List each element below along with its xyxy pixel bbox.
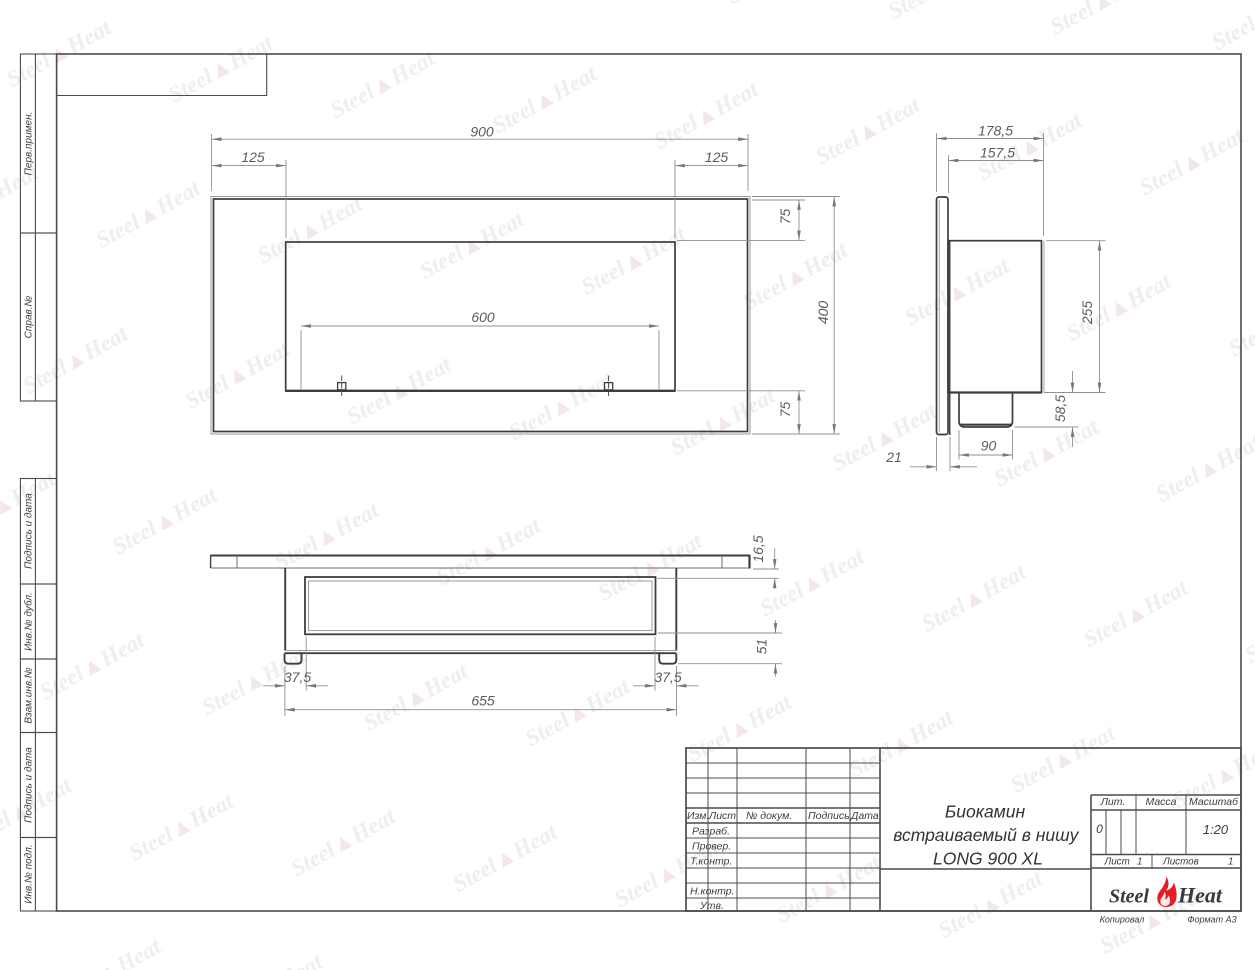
svg-text:Н.контр.: Н.контр. bbox=[690, 886, 734, 898]
svg-text:125: 125 bbox=[241, 149, 265, 165]
svg-text:Перв.примен.: Перв.примен. bbox=[24, 112, 35, 176]
svg-text:157,5: 157,5 bbox=[980, 145, 1015, 161]
svg-text:Т.контр.: Т.контр. bbox=[690, 856, 732, 868]
svg-text:Листов: Листов bbox=[1162, 857, 1199, 868]
svg-text:Лист: Лист bbox=[1104, 857, 1130, 868]
svg-text:Лит.: Лит. bbox=[1100, 796, 1126, 808]
svg-text:37,5: 37,5 bbox=[284, 669, 311, 685]
svg-text:Инв.№ дубл.: Инв.№ дубл. bbox=[23, 592, 35, 651]
svg-text:Масса: Масса bbox=[1145, 796, 1176, 808]
svg-text:Разраб.: Разраб. bbox=[692, 826, 730, 838]
svg-text:90: 90 bbox=[981, 438, 997, 454]
svg-text:Подпись и дата: Подпись и дата bbox=[24, 493, 35, 569]
svg-text:21: 21 bbox=[885, 449, 902, 465]
svg-text:Копировал: Копировал bbox=[1100, 915, 1145, 925]
svg-text:178,5: 178,5 bbox=[978, 123, 1013, 139]
svg-text:Формат А3: Формат А3 bbox=[1187, 915, 1236, 925]
svg-text:Справ.№: Справ.№ bbox=[24, 295, 35, 338]
svg-text:16,5: 16,5 bbox=[750, 535, 766, 562]
svg-text:Steel: Steel bbox=[1109, 886, 1149, 908]
svg-text:Подпись и дата: Подпись и дата bbox=[24, 747, 35, 823]
svg-text:0: 0 bbox=[1096, 822, 1103, 836]
svg-text:1:20: 1:20 bbox=[1203, 822, 1229, 837]
svg-text:Дата: Дата bbox=[850, 810, 879, 822]
svg-text:Heat: Heat bbox=[1177, 883, 1223, 908]
svg-text:Утв.: Утв. bbox=[699, 900, 724, 912]
svg-text:Лист: Лист bbox=[708, 810, 736, 822]
svg-text:75: 75 bbox=[777, 209, 793, 225]
svg-text:Биокамин: Биокамин bbox=[945, 802, 1026, 822]
svg-text:37,5: 37,5 bbox=[654, 669, 681, 685]
svg-text:1: 1 bbox=[1228, 857, 1233, 868]
svg-text:Подпись: Подпись bbox=[808, 810, 850, 822]
svg-text:900: 900 bbox=[470, 124, 494, 140]
svg-text:655: 655 bbox=[471, 693, 495, 709]
svg-text:400: 400 bbox=[815, 301, 831, 325]
svg-text:Взам.инв.№: Взам.инв.№ bbox=[24, 667, 35, 723]
svg-text:1: 1 bbox=[1137, 857, 1142, 868]
svg-text:255: 255 bbox=[1079, 301, 1095, 326]
svg-text:Изм.: Изм. bbox=[687, 810, 709, 822]
svg-text:№ докум.: № докум. bbox=[746, 810, 792, 822]
svg-text:Провер.: Провер. bbox=[692, 841, 731, 853]
svg-text:LONG 900 XL: LONG 900 XL bbox=[933, 849, 1043, 869]
svg-text:600: 600 bbox=[471, 309, 495, 325]
svg-text:75: 75 bbox=[777, 402, 793, 418]
svg-text:125: 125 bbox=[705, 149, 729, 165]
svg-text:58,5: 58,5 bbox=[1052, 395, 1068, 422]
svg-text:встраиваемый в нишу: встраиваемый в нишу bbox=[893, 825, 1079, 845]
svg-text:51: 51 bbox=[754, 639, 770, 655]
svg-text:Инв.№ подл.: Инв.№ подл. bbox=[24, 844, 35, 903]
svg-text:Масштаб: Масштаб bbox=[1189, 796, 1239, 808]
